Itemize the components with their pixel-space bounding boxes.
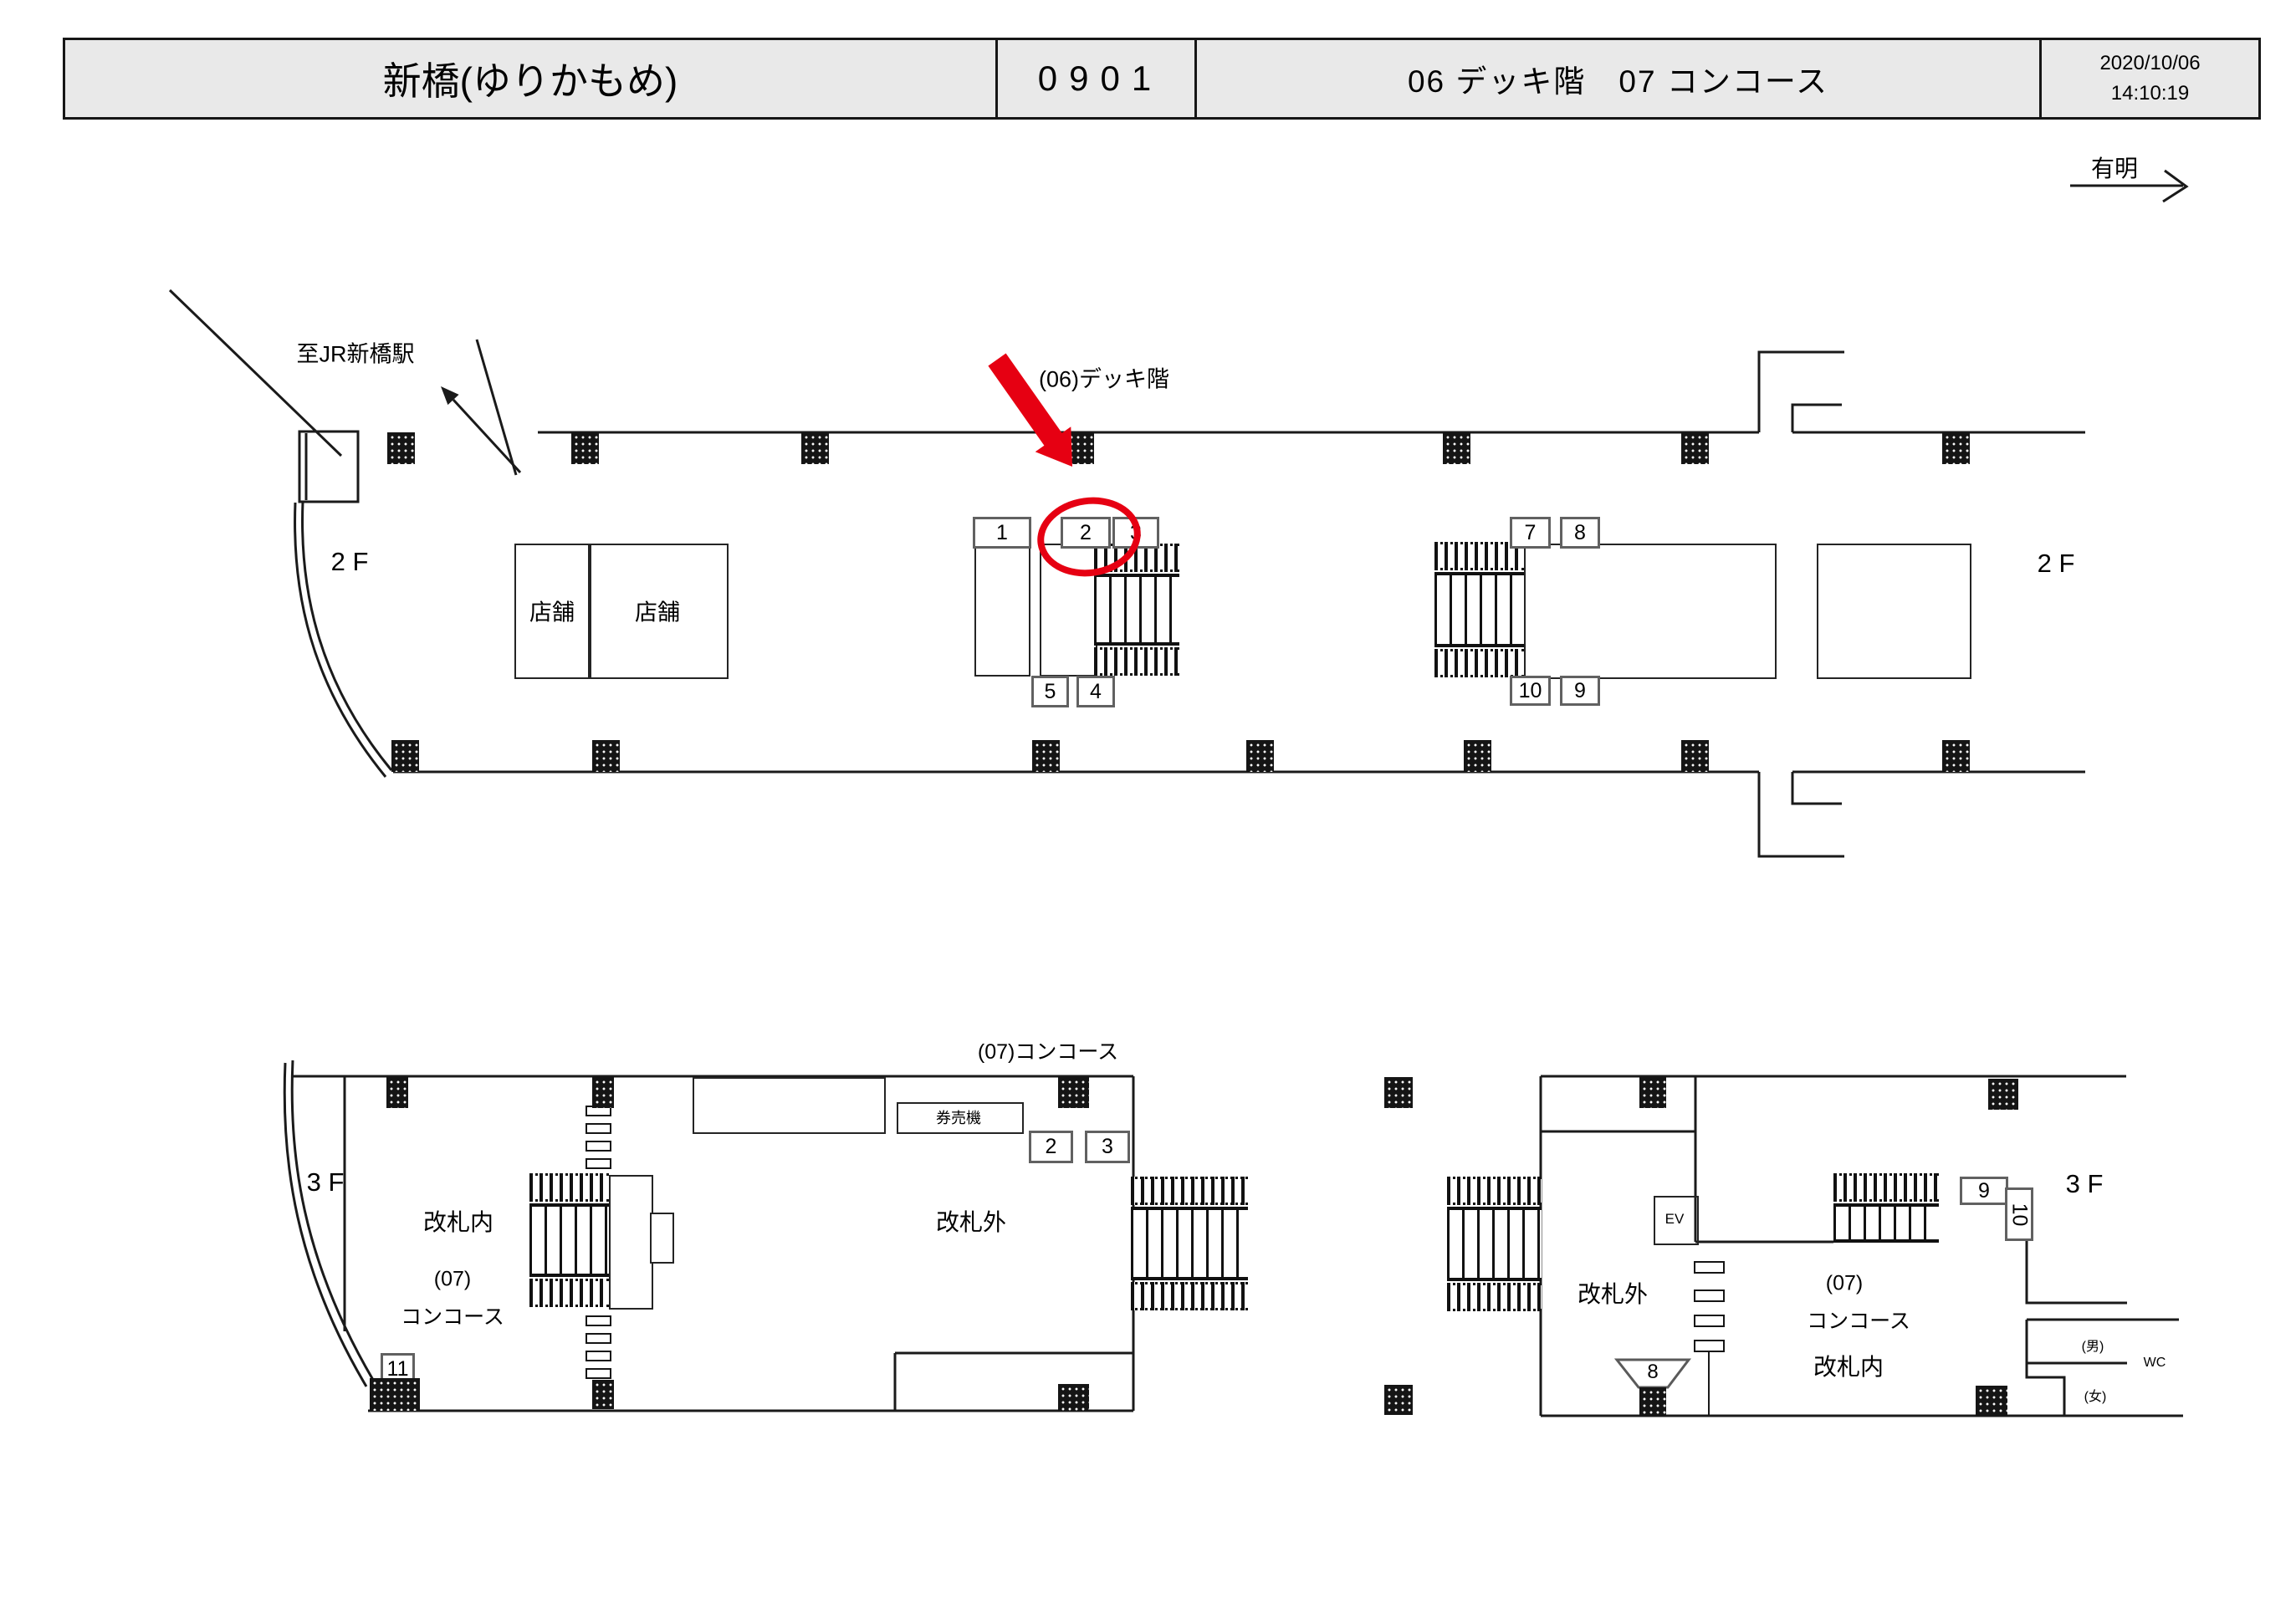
ariake-label: 有明 [2091, 151, 2138, 184]
concourse-left-curved-wall [284, 1060, 373, 1387]
datetime: 2020/10/06 14:10:19 [2039, 40, 2258, 117]
concourse-word-right: コンコース [1807, 1305, 1910, 1335]
floor-names: 06 デッキ階 07 コンコース [1194, 40, 2039, 117]
sign-box-9-concourse: 9 [1960, 1177, 2008, 1205]
station-code: 0901 [995, 40, 1194, 117]
jr-direction-arrow-shaft [453, 400, 520, 472]
pillar [1976, 1386, 2007, 1416]
outside-gate-label-left: 改札外 [936, 1204, 1006, 1238]
concourse-code-left: (07) [434, 1268, 471, 1292]
deck-room-1 [974, 544, 1030, 677]
concourse-left-floor-label: 3 F [307, 1167, 345, 1198]
pillar [1058, 1077, 1089, 1108]
ticket-gate-dash [586, 1123, 611, 1134]
stair-landing-nub [650, 1213, 674, 1264]
sign-box-1: 1 [973, 517, 1031, 549]
deck-floor-label-right: 2 F [2038, 549, 2075, 579]
pillar [592, 1077, 614, 1108]
deck-room-4 [1817, 544, 1971, 679]
deck-floor-label-left: 2 F [331, 547, 369, 577]
pillar [1443, 432, 1470, 464]
inside-gate-label-left: 改札内 [423, 1204, 493, 1238]
concourse-left-center-stairs [529, 1173, 609, 1307]
sign-box-8: 8 [1560, 517, 1600, 549]
concourse-caption: (07)コンコース [978, 1035, 1118, 1065]
jr-corridor-inner-wall [477, 340, 516, 475]
pillar [801, 432, 829, 464]
pillar [1066, 432, 1094, 464]
ticket-gate-dash [586, 1315, 611, 1326]
pillar [1681, 740, 1709, 772]
sign-8-label: 8 [1647, 1361, 1658, 1384]
concourse-code-right: (07) [1826, 1272, 1863, 1296]
ticket-gate-dash [1694, 1261, 1725, 1274]
pillar [370, 1378, 420, 1411]
deck-top-right-notch [1759, 352, 1844, 432]
pillar [1384, 1385, 1413, 1415]
inside-gate-label-right: 改札内 [1813, 1349, 1884, 1382]
concourse-right-floor-label: 3 F [2066, 1169, 2104, 1199]
sign-box-4: 4 [1076, 676, 1115, 707]
concourse-word-left: コンコース [401, 1300, 504, 1330]
sign-box-10-concourse: 10 [2005, 1187, 2033, 1241]
outside-gate-label-right: 改札外 [1578, 1276, 1648, 1310]
deck-left-curved-wall [295, 502, 391, 777]
pillar [1058, 1384, 1089, 1411]
pillar [1639, 1077, 1666, 1108]
ticket-gate-dash [586, 1351, 611, 1361]
pillar [571, 432, 599, 464]
concourse-right-right-stairs [1833, 1173, 1939, 1244]
shop-b-label: 店舗 [635, 595, 680, 627]
sign-box-3-concourse: 3 [1085, 1131, 1130, 1163]
pillar [1384, 1077, 1413, 1108]
pillar [1639, 1387, 1666, 1416]
concourse-left-right-stairs [1131, 1177, 1248, 1310]
ticket-gate-dash [586, 1158, 611, 1169]
deck-caption: (06)デッキ階 [1039, 361, 1169, 394]
sign-box-7: 7 [1510, 517, 1551, 549]
sign-box-10-text: 10 [2007, 1203, 2032, 1226]
date: 2020/10/06 [2099, 49, 2200, 79]
ticket-gate-dash [586, 1141, 611, 1152]
pillar [1246, 740, 1274, 772]
ticket-gate-dash [1694, 1315, 1725, 1327]
pillar [1681, 432, 1709, 464]
stair-landing [609, 1175, 653, 1310]
toilet-wc-label: WC [2144, 1356, 2166, 1371]
sign-box-10: 10 [1510, 676, 1551, 706]
pillar [391, 740, 419, 772]
deck-stairs-right [1434, 542, 1524, 677]
pillar [387, 432, 415, 464]
station-name: 新橋(ゆりかもめ) [65, 40, 995, 117]
elevator-label: EV [1665, 1211, 1685, 1228]
floorplan-linework [0, 0, 2296, 1624]
concourse-right-left-stairs [1447, 1177, 1542, 1311]
concourse-right-gate-wall [2027, 1233, 2127, 1303]
toilet-men-label: (男) [2082, 1335, 2104, 1355]
ticket-gate-dash [586, 1368, 611, 1379]
ticket-gate-dash [586, 1333, 611, 1344]
pillar [1464, 740, 1491, 772]
station-floorplan-screen: 新橋(ゆりかもめ) 0901 06 デッキ階 07 コンコース 2020/10/… [0, 0, 2296, 1624]
ticket-gate-dash [1694, 1340, 1725, 1352]
concourse-left-inner-room [895, 1353, 1133, 1411]
pillar [592, 1380, 614, 1409]
pillar [1942, 740, 1970, 772]
ticket-gate-dash [1694, 1289, 1725, 1302]
sign-box-2-concourse: 2 [1029, 1131, 1073, 1163]
machine-room [693, 1077, 886, 1134]
title-bar: 新橋(ゆりかもめ) 0901 06 デッキ階 07 コンコース 2020/10/… [63, 38, 2261, 120]
pillar [1988, 1079, 2018, 1110]
deck-room-3 [1524, 544, 1777, 679]
sign-box-9: 9 [1560, 676, 1600, 706]
time: 14:10:19 [2111, 79, 2189, 109]
shop-a-label: 店舗 [529, 595, 575, 627]
pillar [592, 740, 620, 772]
ticket-machine-label: 券売機 [936, 1106, 981, 1128]
toilet-women-label: (女) [2084, 1385, 2107, 1405]
pillar [1942, 432, 1970, 464]
to-jr-label: 至JR新橋駅 [297, 336, 415, 369]
pillar [1032, 740, 1060, 772]
pillar [386, 1077, 408, 1108]
sign-box-5: 5 [1031, 676, 1069, 707]
deck-bottom-right-notch [1759, 772, 1844, 856]
